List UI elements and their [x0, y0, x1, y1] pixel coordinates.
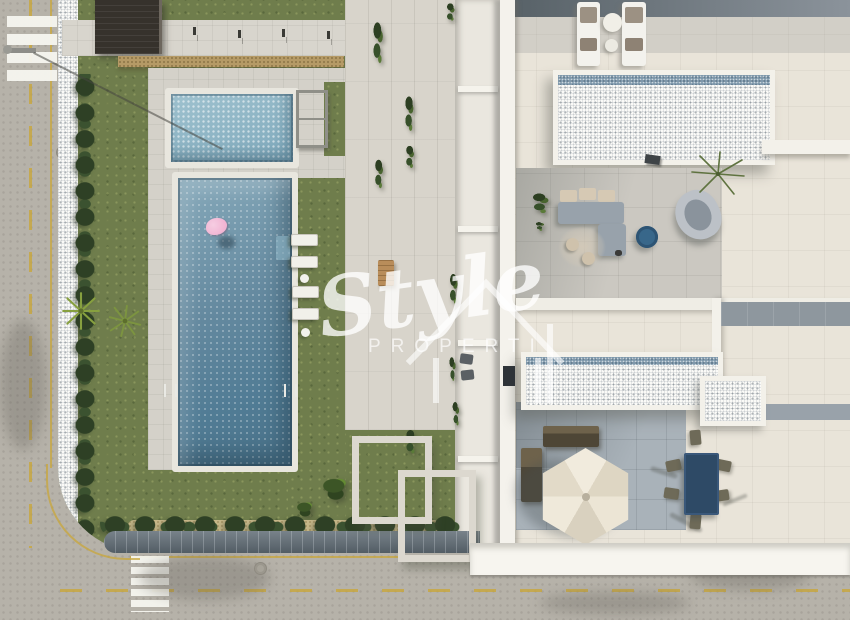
aerial-property-render: Style PROPERTI: [0, 0, 850, 620]
lounger-cushion: [580, 7, 597, 23]
street-lamp-head: [3, 45, 12, 54]
roof-table: [603, 13, 622, 32]
potted-plant: [528, 190, 555, 218]
sofa-seat: [558, 202, 624, 224]
villa-parapet-left: [500, 0, 515, 575]
stairwell-window: [503, 366, 515, 386]
bollard-light: [327, 31, 330, 39]
pergola-frame: [398, 470, 476, 562]
sun-lounger: [291, 256, 318, 268]
road-stain: [540, 592, 690, 614]
palm-tree: [60, 290, 102, 332]
bollard-light: [238, 30, 241, 38]
roof-tile-band: [500, 17, 850, 53]
balcony-chair: [459, 353, 473, 365]
boundary-wall-top: [118, 56, 344, 67]
balcony-rail: [458, 340, 498, 346]
potted-plant: [534, 220, 547, 233]
pouf: [582, 252, 595, 265]
pool-side-table: [300, 274, 309, 283]
balcony-rail: [458, 456, 498, 462]
dining-chair: [689, 430, 701, 446]
sun-lounger: [292, 286, 319, 298]
dining-table: [684, 453, 719, 515]
planter-box: [403, 142, 418, 174]
outdoor-kitchen: [543, 426, 599, 447]
lounger-cushion: [625, 38, 643, 51]
pool-side-table: [301, 328, 310, 337]
planter-box: [372, 154, 387, 196]
palm-plant: [688, 150, 746, 198]
roof-edge-band-top: [500, 0, 850, 17]
roof-lounger: [577, 2, 600, 66]
balcony-rail: [458, 226, 498, 232]
sun-lounger: [291, 234, 318, 246]
parapet-wall: [762, 140, 850, 154]
pool-ladder: [164, 384, 177, 397]
sun-lounger: [292, 308, 319, 320]
planter-box: [447, 268, 461, 312]
flamingo-float: [206, 218, 227, 235]
lounger-cushion: [625, 7, 643, 23]
balcony-chair: [461, 369, 475, 380]
entrance-gate: [95, 0, 162, 54]
gravel-roof-patch: [700, 376, 766, 426]
sofa-back-cushion: [560, 190, 577, 202]
planter-box: [448, 352, 458, 388]
bollard-light: [282, 29, 285, 37]
planter-box: [444, 0, 458, 26]
float-shadow: [218, 236, 235, 249]
pool-deck: [148, 68, 346, 470]
bollard-light: [193, 27, 196, 35]
pool-mosaic-strip: [558, 75, 770, 85]
upper-terrace-band: [721, 302, 850, 326]
parasol-pole: [582, 493, 590, 501]
ac-unit: [644, 154, 660, 165]
lounger-cushion: [580, 38, 597, 51]
gravel-roof-lower: [521, 352, 723, 410]
villa-building: [500, 0, 850, 575]
pouf: [566, 238, 579, 251]
planter-box: [370, 14, 387, 74]
sofa-back-cushion: [598, 190, 615, 202]
pool-shower-frame: [296, 90, 328, 148]
manhole-cover: [254, 562, 267, 575]
road-stain: [140, 556, 270, 600]
roof-lounger: [622, 2, 646, 66]
main-pool: [172, 172, 298, 472]
dining-chair: [663, 487, 679, 500]
perimeter-walkway: [470, 543, 850, 575]
lane-dashes-left: [29, 0, 32, 548]
planter-box: [451, 398, 462, 432]
pool-mosaic-strip: [526, 357, 718, 365]
roof-stool: [605, 39, 618, 52]
coffee-table: [636, 226, 658, 248]
lounge-chair-cushion: [679, 195, 716, 235]
sofa-back-cushion: [579, 188, 596, 200]
wooden-sunbed: [378, 260, 394, 286]
underwater-bench: [276, 236, 290, 260]
palm-tree: [106, 302, 144, 340]
small-object: [615, 250, 622, 256]
road-stain: [0, 320, 46, 450]
street-lamp-arm: [8, 48, 36, 53]
planter-box: [402, 90, 418, 140]
pool-ladder: [284, 384, 297, 397]
dining-chair: [689, 514, 701, 530]
balcony-rail: [458, 86, 498, 92]
